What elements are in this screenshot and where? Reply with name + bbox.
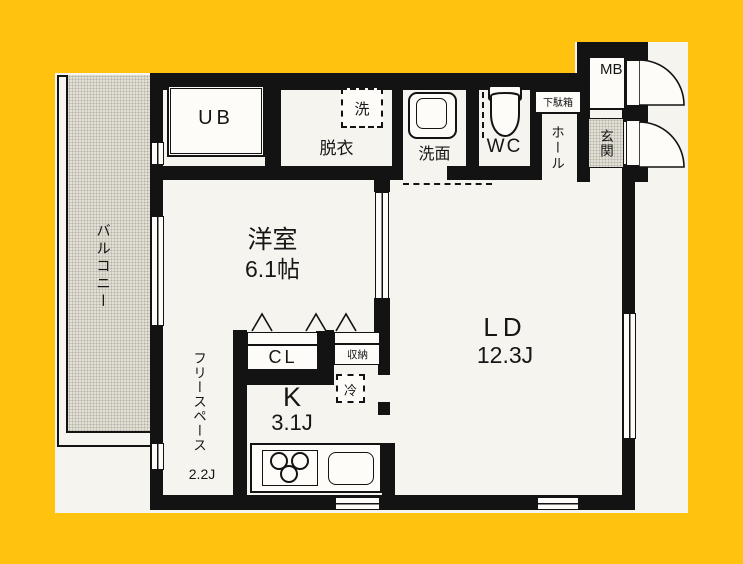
shoe-cabinet-label: 下駄箱 xyxy=(534,94,582,109)
toilet-icon xyxy=(486,84,524,142)
window-bottom-ld xyxy=(537,497,579,510)
partition-sliding-door xyxy=(375,192,389,300)
hall-label: ホール xyxy=(546,113,566,183)
folding-door-triangles xyxy=(247,312,378,332)
unit-bath-label: UB xyxy=(167,107,265,130)
hall-ld-dashed-line xyxy=(403,183,492,185)
wall-storage-right-lower xyxy=(378,402,390,415)
closet-door-track xyxy=(247,332,318,345)
storage-label: 収納 xyxy=(334,347,381,362)
wall-washroom-bottom-left xyxy=(163,166,403,180)
window-left-large xyxy=(151,216,164,326)
western-room-size: 6.1帖 xyxy=(195,250,350,284)
living-dining-size: 12.3J xyxy=(425,342,585,369)
balcony-label: バルコニー xyxy=(92,182,113,352)
stove-burners-icon xyxy=(262,450,316,484)
wall-wc-hall xyxy=(530,73,542,178)
wall-counter-right xyxy=(382,443,395,495)
wall-vanity-wc xyxy=(466,73,479,166)
storage-door-track xyxy=(334,332,380,344)
kitchen-sink xyxy=(328,452,374,485)
window-left-freespace xyxy=(151,443,164,470)
entrance-label: 玄関 xyxy=(595,124,615,162)
living-dining-label: LD xyxy=(425,312,585,343)
wall-dressing-vanity xyxy=(392,73,403,166)
vanity-label: 洗面 xyxy=(403,140,466,164)
wall-partition-top xyxy=(374,166,390,192)
floor-plan: バルコニー UB 脱衣 洗 洗面 WC 下駄箱 xyxy=(0,0,743,564)
wall-freespace-kitchen xyxy=(233,330,247,495)
refrigerator-label: 冷 xyxy=(336,380,365,399)
washing-machine-label: 洗 xyxy=(341,98,383,119)
window-left-small xyxy=(151,142,164,165)
wall-ub-dressing xyxy=(265,73,281,166)
wall-washroom-bottom-right xyxy=(447,166,542,180)
kitchen-label: K xyxy=(252,382,332,413)
door-swing-arcs xyxy=(639,58,689,170)
window-bottom-kitchen xyxy=(335,497,380,510)
closet-label: CL xyxy=(247,347,319,368)
free-space-label: フリースペース xyxy=(188,334,208,470)
kitchen-size: 3.1J xyxy=(252,410,332,436)
vanity-sink-basin xyxy=(416,98,447,129)
dressing-label: 脱衣 xyxy=(281,134,392,159)
free-space-size: 2.2J xyxy=(172,466,232,482)
meter-box-label: MB xyxy=(600,61,616,80)
window-right-ld xyxy=(623,313,636,439)
wc-door-line xyxy=(482,92,484,138)
wc-label: WC xyxy=(479,136,530,158)
